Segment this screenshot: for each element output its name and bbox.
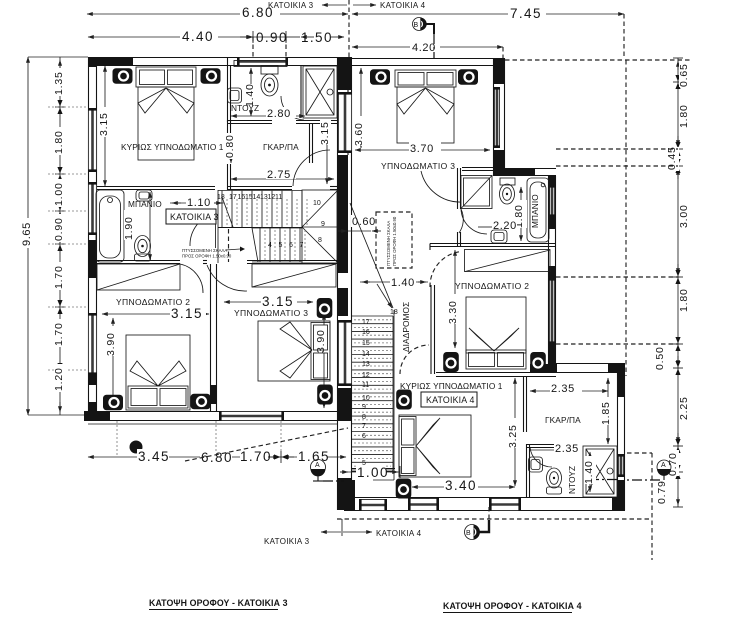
svg-text:Β: Β xyxy=(414,22,419,29)
svg-text:1.00: 1.00 xyxy=(357,465,389,480)
svg-text:1.80: 1.80 xyxy=(53,130,65,154)
svg-text:ΔΙΑΔΡΟΜΟΣ: ΔΙΑΔΡΟΜΟΣ xyxy=(401,302,411,352)
svg-text:2.80: 2.80 xyxy=(267,108,291,120)
svg-text:1.90: 1.90 xyxy=(123,216,135,240)
svg-text:0.50: 0.50 xyxy=(654,346,666,370)
svg-text:12: 12 xyxy=(362,372,370,379)
svg-text:17: 17 xyxy=(362,319,370,326)
svg-text:17: 17 xyxy=(229,194,237,201)
svg-text:3.70: 3.70 xyxy=(410,143,434,155)
svg-text:0.65: 0.65 xyxy=(678,63,690,87)
svg-text:1.65: 1.65 xyxy=(298,449,330,464)
svg-text:10: 10 xyxy=(362,395,370,402)
svg-text:3.60: 3.60 xyxy=(353,122,365,146)
svg-text:10: 10 xyxy=(313,200,321,207)
svg-text:ΚΑΤΟΙΚΙΑ 4: ΚΑΤΟΙΚΙΑ 4 xyxy=(426,395,475,405)
svg-text:2.75: 2.75 xyxy=(267,169,291,181)
svg-text:ΚΑΤΟΙΚΙΑ 4: ΚΑΤΟΙΚΙΑ 4 xyxy=(380,1,426,10)
svg-text:ΜΠΑΝΙΟ: ΜΠΑΝΙΟ xyxy=(128,199,162,209)
svg-text:ΚΑΤΟΙΚΙΑ 4: ΚΑΤΟΙΚΙΑ 4 xyxy=(376,529,422,538)
svg-text:ΓΚΑΡ/ΠΑ: ΓΚΑΡ/ΠΑ xyxy=(263,142,299,152)
svg-text:6: 6 xyxy=(289,242,293,249)
svg-text:3.15: 3.15 xyxy=(319,121,331,145)
svg-text:1.85: 1.85 xyxy=(600,401,612,425)
svg-text:ΥΠΝΟΔΩΜΑΤΙΟ 2: ΥΠΝΟΔΩΜΑΤΙΟ 2 xyxy=(455,281,529,291)
svg-text:ΠΡΟΣ ΟΡΟΦΗ 1.50x0.90: ΠΡΟΣ ΟΡΟΦΗ 1.50x0.90 xyxy=(392,216,397,266)
svg-text:1.70: 1.70 xyxy=(240,449,272,464)
svg-text:3.25: 3.25 xyxy=(507,424,519,448)
svg-text:1.35: 1.35 xyxy=(53,71,65,95)
svg-text:9.65: 9.65 xyxy=(21,222,33,246)
svg-text:11: 11 xyxy=(362,382,369,389)
svg-text:ΥΠΝΟΔΩΜΑΤΙΟ 3: ΥΠΝΟΔΩΜΑΤΙΟ 3 xyxy=(234,308,308,318)
svg-text:9: 9 xyxy=(321,221,325,228)
svg-text:3.15: 3.15 xyxy=(98,112,110,136)
svg-text:ΚΥΡΙΩΣ ΥΠΝΟΔΩΜΑΤΙΟ 1: ΚΥΡΙΩΣ ΥΠΝΟΔΩΜΑΤΙΟ 1 xyxy=(400,381,503,391)
svg-text:13: 13 xyxy=(362,361,370,368)
svg-text:ΚΑΤΟΙΚΙΑ 3: ΚΑΤΟΙΚΙΑ 3 xyxy=(170,212,219,222)
svg-text:0.79: 0.79 xyxy=(656,480,668,504)
svg-text:ΠΤΥΣΣΟΜΕΝΗ ΣΚΑΛΑ: ΠΤΥΣΣΟΜΕΝΗ ΣΚΑΛΑ xyxy=(386,221,391,266)
svg-text:8: 8 xyxy=(362,414,366,421)
svg-text:0.60: 0.60 xyxy=(352,216,376,228)
svg-text:6.80: 6.80 xyxy=(201,450,233,465)
svg-text:7: 7 xyxy=(300,242,304,249)
svg-text:7.45: 7.45 xyxy=(510,6,542,21)
svg-text:ΜΠΑΝΙΟ: ΜΠΑΝΙΟ xyxy=(530,194,540,228)
svg-text:ΚΥΡΙΩΣ ΥΠΝΟΔΩΜΑΤΙΟ 1: ΚΥΡΙΩΣ ΥΠΝΟΔΩΜΑΤΙΟ 1 xyxy=(121,142,224,152)
svg-text:Α: Α xyxy=(661,462,666,469)
svg-text:3.30: 3.30 xyxy=(447,300,459,324)
svg-text:4.20: 4.20 xyxy=(412,42,436,54)
svg-text:3.40: 3.40 xyxy=(445,478,477,493)
svg-text:18: 18 xyxy=(390,309,398,316)
svg-text:1.10: 1.10 xyxy=(187,197,211,209)
svg-text:15: 15 xyxy=(362,340,370,347)
svg-text:ΚΑΤΟΨΗ ΟΡΟΦΟΥ - ΚΑΤΟΙΚΙΑ 4: ΚΑΤΟΨΗ ΟΡΟΦΟΥ - ΚΑΤΟΙΚΙΑ 4 xyxy=(443,601,582,611)
svg-text:1.70: 1.70 xyxy=(53,265,65,289)
svg-text:3.15: 3.15 xyxy=(262,294,294,309)
svg-text:2.25: 2.25 xyxy=(678,396,690,420)
svg-text:1.50: 1.50 xyxy=(301,30,333,45)
svg-text:ΝΤΟΥΖ: ΝΤΟΥΖ xyxy=(231,103,259,113)
svg-text:3.00: 3.00 xyxy=(678,204,690,228)
svg-text:1.20: 1.20 xyxy=(53,367,65,391)
svg-text:4.40: 4.40 xyxy=(182,29,214,44)
svg-text:2.35: 2.35 xyxy=(555,443,579,455)
svg-text:3.90: 3.90 xyxy=(105,332,117,356)
svg-text:3.15: 3.15 xyxy=(171,306,203,321)
svg-text:1.80: 1.80 xyxy=(678,288,690,312)
svg-text:Α: Α xyxy=(315,462,320,469)
svg-text:0.80: 0.80 xyxy=(224,134,236,158)
svg-text:4: 4 xyxy=(268,242,272,249)
svg-text:9: 9 xyxy=(362,404,366,411)
svg-text:0.90: 0.90 xyxy=(256,30,288,45)
svg-text:16: 16 xyxy=(362,329,370,336)
svg-text:5: 5 xyxy=(279,242,283,249)
svg-text:1.80: 1.80 xyxy=(678,104,690,128)
svg-text:1.40: 1.40 xyxy=(583,460,595,484)
svg-text:ΚΑΤΟΙΚΙΑ 3: ΚΑΤΟΙΚΙΑ 3 xyxy=(264,537,310,546)
svg-text:ΚΑΤΟΨΗ ΟΡΟΦΟΥ - ΚΑΤΟΙΚΙΑ 3: ΚΑΤΟΨΗ ΟΡΟΦΟΥ - ΚΑΤΟΙΚΙΑ 3 xyxy=(149,598,288,608)
svg-text:ΚΑΤΟΙΚΙΑ 3: ΚΑΤΟΙΚΙΑ 3 xyxy=(268,1,314,10)
svg-text:ΓΚΑΡ/ΠΑ: ΓΚΑΡ/ΠΑ xyxy=(545,415,581,425)
svg-text:6: 6 xyxy=(362,433,366,440)
svg-text:7: 7 xyxy=(362,423,366,430)
svg-text:Β: Β xyxy=(466,530,471,537)
svg-text:3.90: 3.90 xyxy=(315,329,327,353)
svg-text:ΝΤΟΥΖ: ΝΤΟΥΖ xyxy=(567,466,577,494)
svg-text:11: 11 xyxy=(275,194,282,201)
svg-text:18: 18 xyxy=(217,194,225,201)
svg-text:8: 8 xyxy=(318,237,322,244)
svg-text:ΠΤΥΣΣΟΜΕΝΗ ΣΚΑΛΑ: ΠΤΥΣΣΟΜΕΝΗ ΣΚΑΛΑ xyxy=(182,248,227,253)
svg-text:2.35: 2.35 xyxy=(551,383,575,395)
svg-text:0.90: 0.90 xyxy=(53,217,65,241)
svg-text:1.00: 1.00 xyxy=(53,182,65,206)
svg-text:14: 14 xyxy=(362,351,370,358)
svg-text:3.45: 3.45 xyxy=(138,449,170,464)
svg-text:1.70: 1.70 xyxy=(53,322,65,346)
svg-text:ΠΡΟΣ ΟΡΟΦΗ 1.50x0.90: ΠΡΟΣ ΟΡΟΦΗ 1.50x0.90 xyxy=(182,254,232,259)
svg-text:ΥΠΝΟΔΩΜΑΤΙΟ 3: ΥΠΝΟΔΩΜΑΤΙΟ 3 xyxy=(381,161,455,171)
svg-text:1.40: 1.40 xyxy=(391,277,415,289)
